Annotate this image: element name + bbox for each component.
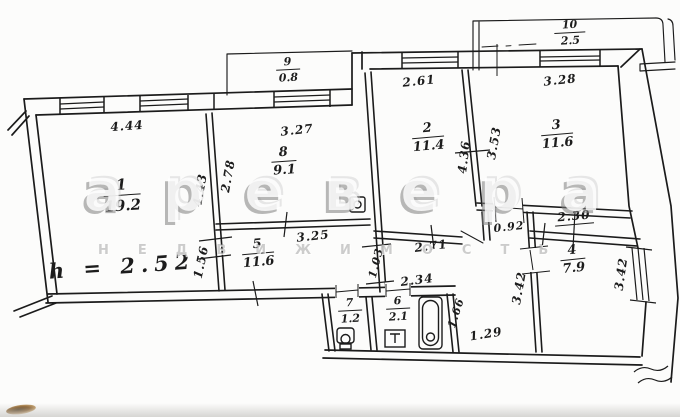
- right-wall-window: [626, 247, 656, 303]
- room-area: 7.9: [560, 258, 587, 277]
- floor-plan-scan: 1 19.2 2 11.4 3 11.6 4 7.9 5 11.6 6 2.1 …: [0, 0, 680, 417]
- toilet-icon: [337, 328, 354, 349]
- room-2-label: 2 11.4: [411, 121, 445, 156]
- room-9-balcony-label: 9 0.8: [275, 56, 300, 85]
- room-7-label: 7 1.2: [337, 297, 362, 326]
- window-dividers: [60, 50, 600, 114]
- room-area: 1.2: [338, 310, 362, 325]
- room-area: 11.4: [412, 136, 445, 155]
- room-number: 9: [275, 56, 299, 71]
- room-area: 2.5: [554, 32, 586, 48]
- washbasin-icon: [385, 330, 405, 347]
- room-6-label: 6 2.1: [385, 295, 410, 324]
- watermark-subtitle: НЕДВИЖИМОСТЬ: [98, 243, 577, 258]
- scan-edge-shadow: [0, 403, 680, 417]
- room-number: 7: [337, 297, 361, 312]
- room-area: 0.8: [276, 69, 300, 84]
- wall-break-mark: [634, 366, 672, 383]
- watermark-brand: аревера: [84, 156, 654, 224]
- room-area: 11.6: [541, 133, 574, 152]
- room-10-balcony-label: 10 2.5: [554, 18, 587, 47]
- bathtub-icon: [419, 297, 442, 349]
- dim-4-44: 4.44: [110, 118, 144, 134]
- room-area: 2.1: [386, 308, 410, 323]
- room-number: 6: [385, 295, 409, 310]
- room-3-label: 3 11.6: [540, 118, 574, 153]
